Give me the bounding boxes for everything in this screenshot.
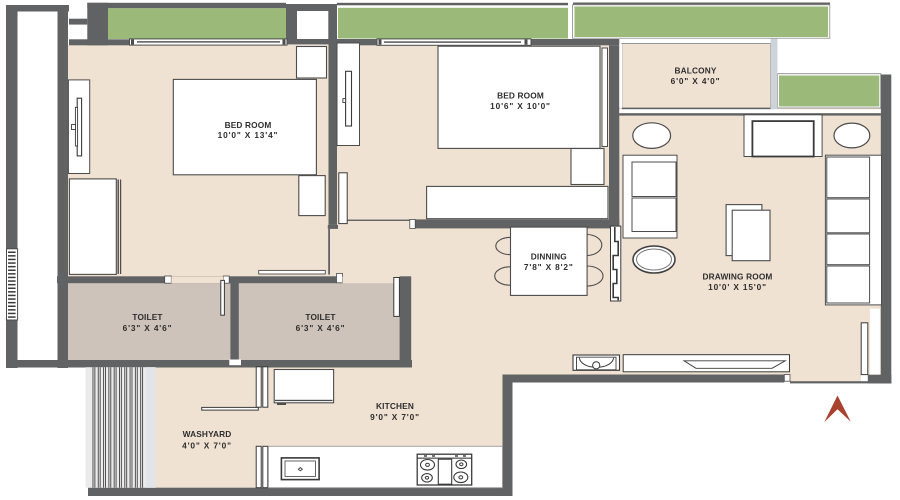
svg-text:6'3" X 4'6": 6'3" X 4'6" xyxy=(296,323,346,333)
svg-text:WASHYARD: WASHYARD xyxy=(183,429,232,439)
svg-text:BED ROOM: BED ROOM xyxy=(225,120,272,130)
svg-text:7'8" X 8'2": 7'8" X 8'2" xyxy=(524,262,574,272)
svg-text:TOILET: TOILET xyxy=(305,312,335,322)
svg-text:TOILET: TOILET xyxy=(132,312,162,322)
svg-text:10'0' X 15'0": 10'0' X 15'0" xyxy=(708,282,767,292)
svg-text:6'0" X 4'0": 6'0" X 4'0" xyxy=(671,76,721,86)
svg-text:BED ROOM: BED ROOM xyxy=(497,91,544,101)
svg-text:4'0" X 7'0": 4'0" X 7'0" xyxy=(182,441,232,451)
svg-text:DRAWING ROOM: DRAWING ROOM xyxy=(702,272,772,282)
svg-text:6'3" X 4'6": 6'3" X 4'6" xyxy=(123,323,173,333)
svg-text:KITCHEN: KITCHEN xyxy=(376,401,414,411)
svg-text:DINNING: DINNING xyxy=(531,252,567,262)
svg-text:BALCONY: BALCONY xyxy=(674,65,716,75)
svg-text:10'0" X 13'4": 10'0" X 13'4" xyxy=(218,130,279,140)
svg-text:9'0" X 7'0": 9'0" X 7'0" xyxy=(370,412,420,422)
svg-text:10'6" X 10'0": 10'6" X 10'0" xyxy=(490,101,551,111)
